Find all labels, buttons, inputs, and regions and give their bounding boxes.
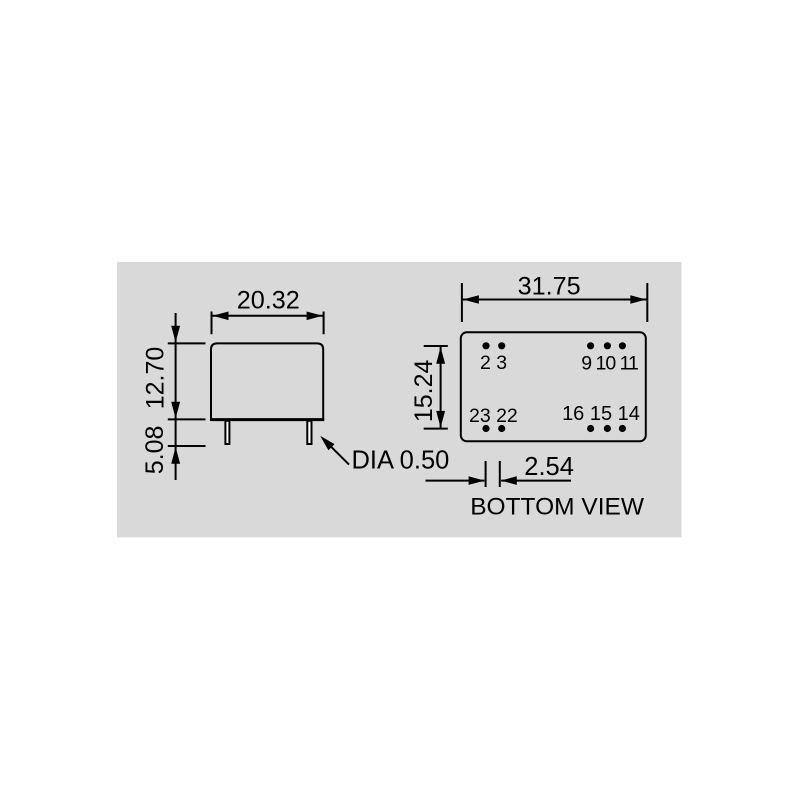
svg-text:2.54: 2.54 <box>524 453 574 481</box>
svg-text:23 22: 23 22 <box>469 405 518 427</box>
svg-text:15.24: 15.24 <box>410 360 438 423</box>
svg-text:5.08: 5.08 <box>141 426 169 475</box>
svg-text:2 3: 2 3 <box>480 352 507 374</box>
svg-text:20.32: 20.32 <box>237 287 300 315</box>
svg-text:BOTTOM VIEW: BOTTOM VIEW <box>470 494 645 521</box>
svg-text:DIA 0.50: DIA 0.50 <box>352 447 450 475</box>
svg-text:31.75: 31.75 <box>518 273 581 301</box>
svg-text:16 15 14: 16 15 14 <box>562 403 640 425</box>
svg-text:12.70: 12.70 <box>141 347 169 410</box>
svg-text:9 10 11: 9 10 11 <box>581 352 638 374</box>
